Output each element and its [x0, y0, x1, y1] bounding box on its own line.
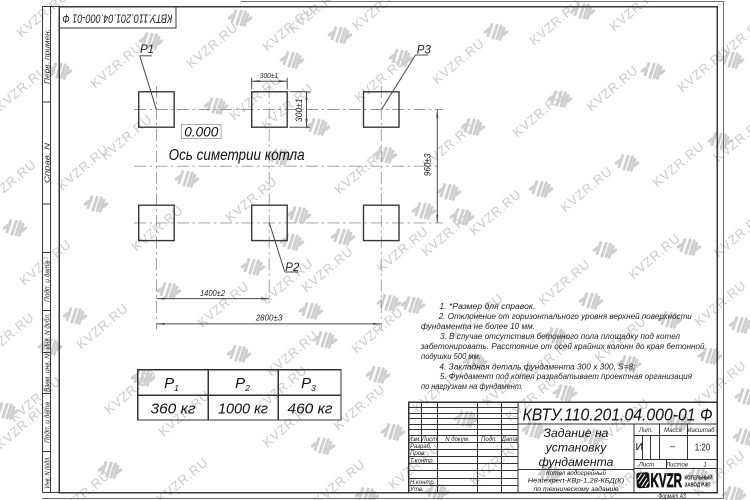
svg-text:установку: установку — [545, 440, 608, 454]
svg-text:Подп.: Подп. — [481, 437, 497, 443]
svg-text:5. Фундамент под котел раз: 5. Фундамент под котел разрабатывает про… — [440, 372, 693, 381]
svg-text:КОТЕЛЬНЫЙ: КОТЕЛЬНЫЙ — [685, 473, 713, 481]
svg-text:Подп. и дата: Подп. и дата — [43, 402, 52, 443]
svg-text:КВТУ.110.201.04.000-01 Ф: КВТУ.110.201.04.000-01 Ф — [523, 404, 713, 424]
svg-text:Взам. инв. N: Взам. инв. N — [43, 353, 52, 392]
svg-text:300±1: 300±1 — [260, 71, 279, 80]
svg-text:Масса: Масса — [664, 428, 682, 434]
svg-text:2. Отклонение от горизонтал: 2. Отклонение от горизонтального уровня … — [438, 312, 693, 321]
svg-text:Справ. N: Справ. N — [43, 142, 52, 183]
svg-text:по техническому заданию: по техническому заданию — [534, 485, 619, 493]
svg-text:Масштаб: Масштаб — [686, 428, 715, 434]
svg-text:360 кг: 360 кг — [151, 401, 197, 418]
svg-text:1400±2: 1400±2 — [200, 289, 226, 298]
svg-text:1: 1 — [703, 462, 706, 468]
svg-text:300±1: 300±1 — [294, 98, 305, 122]
svg-text:И: И — [636, 441, 644, 453]
svg-text:Формат А3: Формат А3 — [658, 494, 686, 500]
svg-text:Р3: Р3 — [417, 44, 432, 56]
svg-text:фундамента: фундамента — [539, 455, 614, 469]
svg-text:Подп. и дата: Подп. и дата — [43, 261, 52, 302]
svg-text:Котел водогрейный: Котел водогрейный — [546, 469, 606, 477]
svg-text:забетонировать. Расстояние о: забетонировать. Расстояние от осей крайн… — [420, 342, 706, 351]
svg-text:по нагрузкам на фундамент.: по нагрузкам на фундамент. — [421, 382, 523, 391]
svg-text:1000 кг: 1000 кг — [218, 401, 269, 418]
svg-text:КВТУ.110.201.04.000-01 Ф: КВТУ.110.201.04.000-01 Ф — [62, 11, 172, 25]
svg-text:Инв. N дубл.: Инв. N дубл. — [43, 313, 52, 349]
svg-text:ЗАВОД РЭП: ЗАВОД РЭП — [685, 482, 711, 488]
svg-text:N докум.: N докум. — [445, 437, 469, 443]
svg-text:Инв. N подл.: Инв. N подл. — [43, 456, 52, 488]
svg-text:0.000: 0.000 — [184, 124, 218, 139]
svg-text:460 кг: 460 кг — [288, 401, 334, 418]
svg-text:Н.контр.: Н.контр. — [410, 480, 435, 486]
svg-text:3. В случае отсутствия бет: 3. В случае отсутствия бетонного пола пл… — [440, 332, 680, 341]
svg-text:KVZR: KVZR — [651, 470, 683, 492]
svg-text:Разраб.: Разраб. — [410, 444, 432, 450]
svg-text:–: – — [670, 441, 675, 451]
svg-text:фундамента не более 10 мм.: фундамента не более 10 мм. — [421, 322, 535, 331]
svg-text:Лист: Лист — [638, 462, 654, 468]
svg-text:Изм.: Изм. — [408, 437, 421, 443]
svg-text:Листов: Листов — [665, 462, 688, 468]
svg-text:Утв.: Утв. — [409, 487, 424, 493]
svg-text:Р1: Р1 — [140, 44, 154, 56]
svg-text:Лит.: Лит. — [638, 428, 653, 434]
svg-text:960±3: 960±3 — [423, 153, 434, 176]
svg-text:Дата: Дата — [501, 437, 518, 443]
svg-text:Heatexpert-КВр-1,28-КБД(К): Heatexpert-КВр-1,28-КБД(К) — [528, 478, 625, 485]
svg-text:подушки 500 мм.: подушки 500 мм. — [421, 352, 481, 361]
svg-text:Т.контр.: Т.контр. — [410, 458, 434, 464]
svg-text:Ось симетрии котла: Ось симетрии котла — [169, 147, 305, 164]
svg-text:2800±3: 2800±3 — [255, 313, 283, 322]
svg-text:Пров.: Пров. — [410, 451, 426, 457]
svg-text:4. Закладная деталь фундаме: 4. Закладная деталь фундамента 300 x 300… — [439, 362, 635, 371]
svg-text:Перв. примен.: Перв. примен. — [43, 29, 52, 84]
svg-text:Р2: Р2 — [285, 262, 300, 274]
svg-text:1:20: 1:20 — [695, 443, 711, 454]
svg-text:Задание на: Задание на — [544, 426, 609, 440]
svg-text:1. *Размер для справок.: 1. *Размер для справок. — [439, 302, 535, 311]
svg-text:Лист: Лист — [421, 437, 437, 443]
